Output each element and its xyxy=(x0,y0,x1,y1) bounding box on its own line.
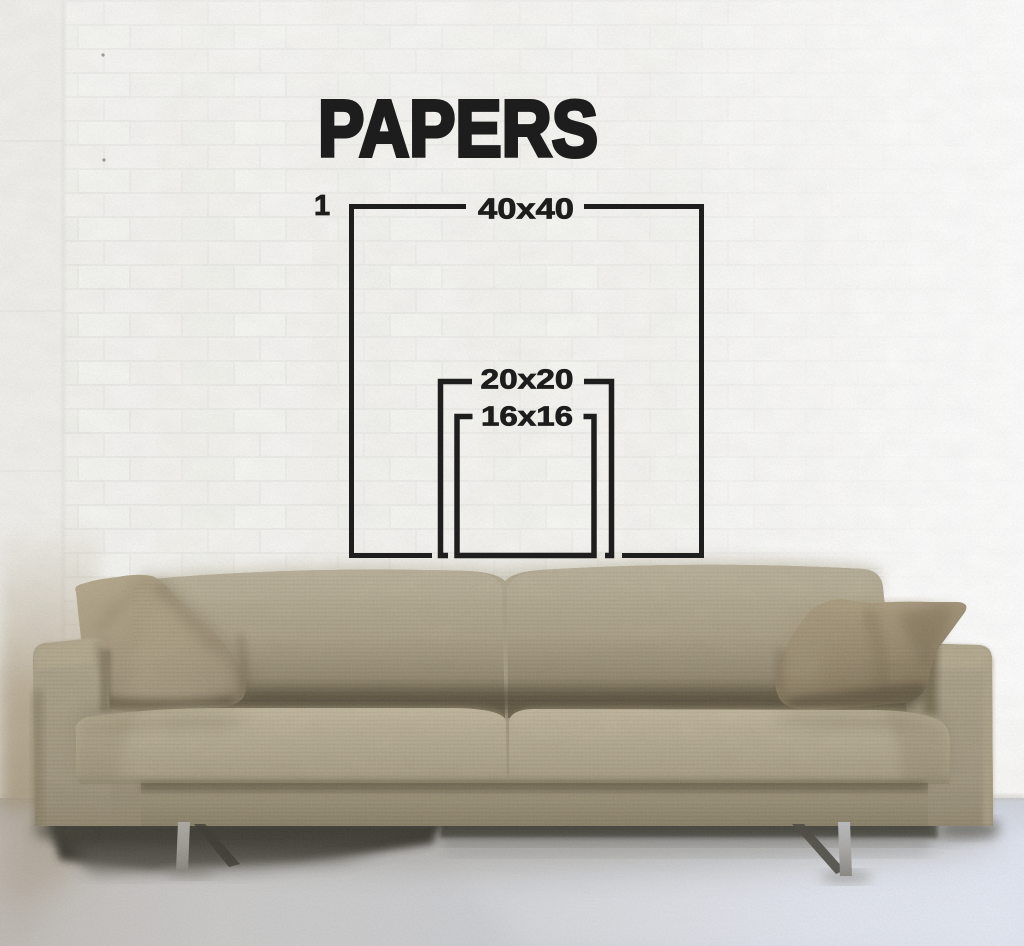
svg-text:16x16: 16x16 xyxy=(481,401,573,432)
svg-text:1: 1 xyxy=(314,190,330,222)
svg-text:PAPERS: PAPERS xyxy=(318,84,598,173)
svg-text:40x40: 40x40 xyxy=(478,194,574,226)
svg-text:20x20: 20x20 xyxy=(481,364,574,395)
